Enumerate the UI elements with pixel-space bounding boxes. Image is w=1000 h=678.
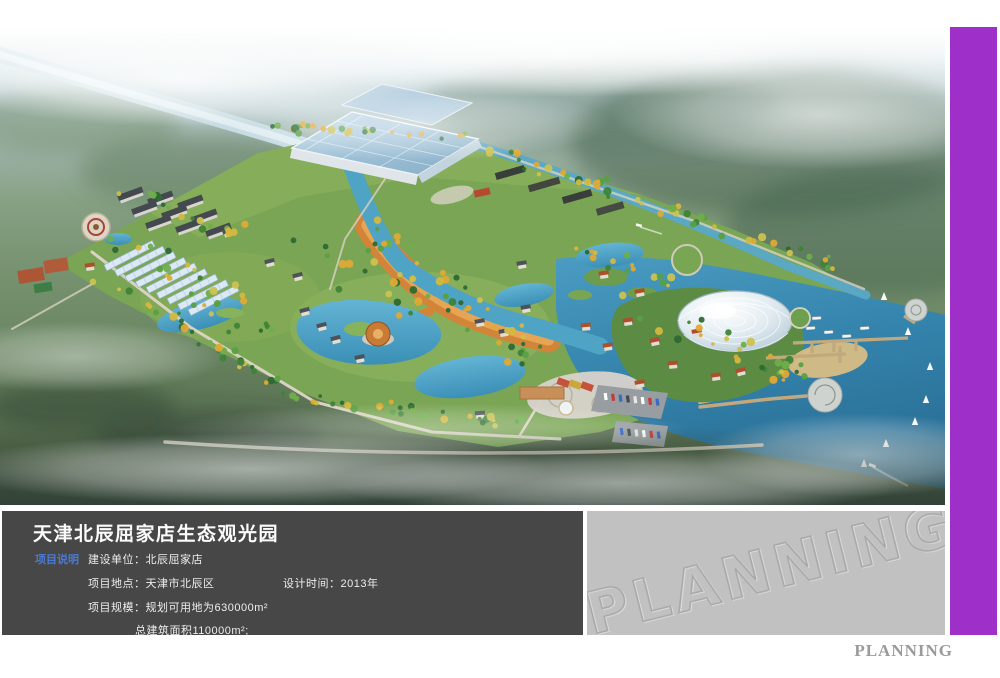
project-location: 项目地点：天津市北辰区 [88,575,215,591]
glass-dome [678,291,792,351]
section-label: 项目说明 [35,551,79,567]
ornamental-circle-plaza [82,213,110,241]
project-scale: 项目规模：规划可用地为630000m² [88,599,268,615]
project-title: 天津北辰屈家店生态观光园 [33,519,279,546]
design-time: 设计时间：2013年 [283,575,378,591]
watermark-panel: PLANNING [587,511,945,635]
planning-logo: PLANNING [854,641,953,661]
accent-bar [950,27,997,635]
presentation-board: 天津北辰屈家店生态观光园 项目说明 建设单位：北辰屈家店 项目地点：天津市北辰区… [0,0,1000,678]
aerial-rendering [0,27,945,505]
project-info-panel: 天津北辰屈家店生态观光园 项目说明 建设单位：北辰屈家店 项目地点：天津市北辰区… [2,511,583,635]
embossed-planning-watermark: PLANNING [587,511,945,635]
construction-unit: 建设单位：北辰屈家店 [88,551,203,567]
floor-area: 总建筑面积110000m²; [135,622,249,638]
